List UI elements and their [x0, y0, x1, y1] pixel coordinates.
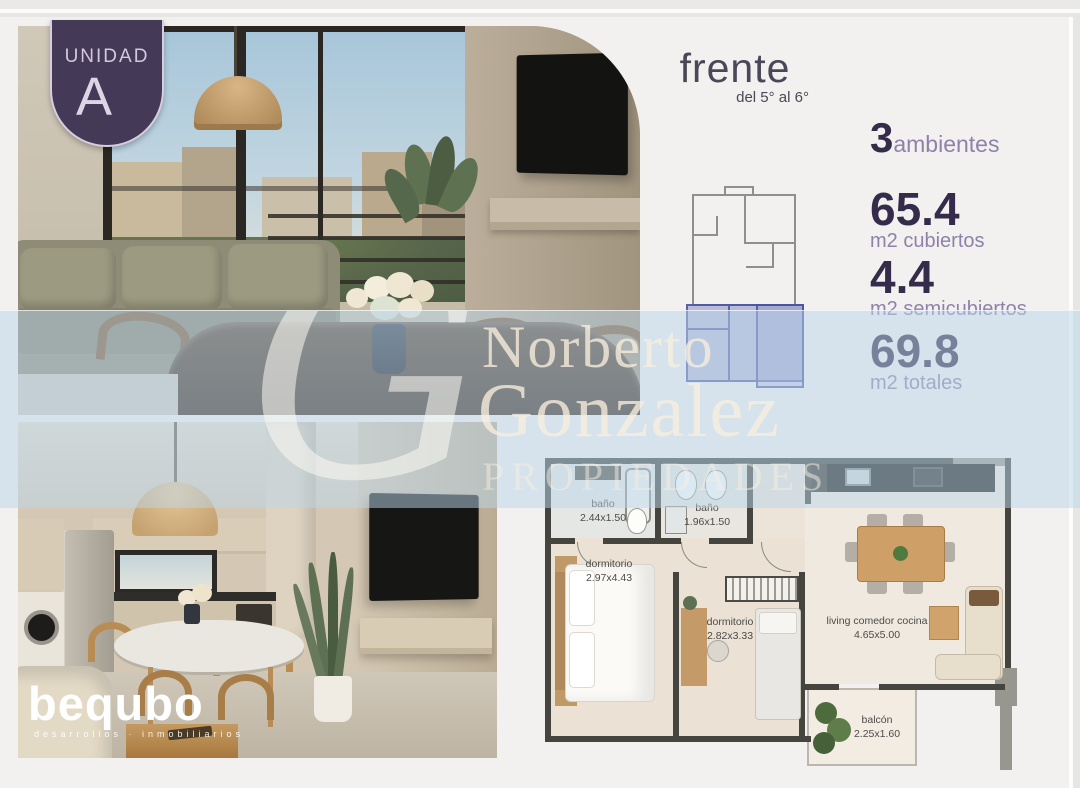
- bed-headboard: [555, 572, 565, 690]
- room-label-bedroom1: dormitorio 2.97x4.43: [559, 558, 659, 585]
- wall: [799, 684, 839, 690]
- plant-pot: [314, 676, 352, 722]
- wall: [655, 458, 661, 538]
- wall: [545, 538, 575, 544]
- pendant-cord: [174, 422, 177, 484]
- kitchen-photo: bequbo desarrollos · inmobiliarios: [18, 422, 497, 758]
- dining-table: [114, 620, 304, 672]
- small-vase: [184, 604, 200, 624]
- tv-screen: [369, 493, 478, 601]
- room-name: dormitorio: [687, 616, 773, 630]
- room-dims: 2.44x1.50: [561, 512, 645, 526]
- laundry-cabinet: [18, 518, 64, 590]
- room-label-bath2: baño 1.96x1.50: [667, 502, 747, 529]
- room-dims: 2.82x3.33: [687, 630, 773, 644]
- room-dims: 4.65x5.00: [817, 629, 937, 643]
- wall: [673, 572, 679, 736]
- kitchen-sink: [845, 468, 871, 486]
- room-label-bedroom2: dormitorio 2.82x3.33: [687, 616, 773, 643]
- tv-console: [490, 198, 640, 230]
- keyplan-wall: [746, 266, 774, 268]
- bath-vanity: [575, 466, 621, 480]
- stat-ambientes-value: 3: [870, 118, 893, 158]
- stat-ambientes: 3ambientes: [870, 118, 999, 158]
- kitchen-cabinet: [811, 464, 827, 492]
- floor-plan: baño 2.44x1.50 baño 1.96x1.50 dormitorio…: [545, 458, 1037, 770]
- desk-chair: [707, 640, 729, 662]
- hall-floor: [753, 464, 805, 538]
- dining-chair-bottom: [867, 580, 887, 594]
- keyplan-wall: [716, 216, 718, 236]
- orientation-floors: del 5° al 6°: [655, 89, 815, 106]
- bidet: [705, 470, 727, 500]
- room-label-bath1: baño 2.44x1.50: [561, 498, 645, 525]
- stat-cubiertos-label: m2 cubiertos: [870, 230, 985, 253]
- keyplan-unit-wall: [728, 306, 730, 380]
- keyplan-wall: [772, 244, 774, 268]
- floating-shelf: [360, 618, 492, 654]
- room-label-balcony: balcón 2.25x1.60: [837, 714, 917, 741]
- brand-tagline: desarrollos · inmobiliarios: [34, 729, 244, 739]
- wardrobe: [725, 576, 799, 602]
- stat-ambientes-label: ambientes: [893, 131, 999, 157]
- sofa-chaise: [935, 654, 1001, 680]
- stat-semicubiertos: 4.4m2 semicubiertos: [870, 256, 1027, 321]
- photo1-floor: [18, 374, 178, 415]
- room-dims: 2.25x1.60: [837, 728, 917, 742]
- tv-screen: [517, 53, 628, 176]
- wall: [879, 684, 1005, 690]
- wall: [545, 736, 811, 742]
- page-top-strip: [0, 0, 1080, 13]
- brand-name: bequbo: [28, 680, 244, 727]
- sofa-cushion: [20, 248, 116, 310]
- room-name: dormitorio: [559, 558, 659, 572]
- desk-plant: [683, 596, 697, 610]
- sofa-pillow: [969, 590, 999, 606]
- stove: [913, 467, 943, 487]
- stat-cubiertos: 65.4m2 cubiertos: [870, 188, 985, 253]
- stat-totales: 69.8m2 totales: [870, 330, 962, 395]
- toilet: [675, 470, 697, 500]
- stat-semicubiertos-label: m2 semicubiertos: [870, 298, 1027, 321]
- flowers: [370, 296, 400, 320]
- pillow: [569, 632, 595, 688]
- unit-badge-letter: A: [52, 70, 136, 124]
- flowers: [192, 584, 212, 602]
- wall: [545, 458, 551, 742]
- stat-cubiertos-value: 65.4: [870, 188, 985, 232]
- room-name: balcón: [837, 714, 917, 728]
- room-label-living: living comedor cocina 4.65x5.00: [817, 615, 937, 642]
- keyplan-wall: [744, 242, 794, 244]
- wall: [747, 458, 753, 538]
- stat-totales-value: 69.8: [870, 330, 962, 374]
- wall: [1005, 458, 1011, 684]
- keyplan-unit-living: [756, 304, 804, 388]
- stat-semicubiertos-value: 4.4: [870, 256, 1027, 300]
- room-name: baño: [561, 498, 645, 512]
- sofa-cushion: [228, 244, 328, 310]
- wall: [603, 538, 681, 544]
- stat-totales-label: m2 totales: [870, 372, 962, 395]
- keyplan-wall: [692, 234, 716, 236]
- wall-pillar: [1000, 706, 1012, 770]
- dining-chair-bottom: [903, 580, 923, 594]
- sofa-cushion: [122, 246, 222, 310]
- pendant-cord: [234, 26, 237, 78]
- room-dims: 2.97x4.43: [559, 572, 659, 586]
- room-name: baño: [667, 502, 747, 516]
- orientation-block: frente del 5° al 6°: [655, 48, 815, 106]
- flowers: [398, 298, 422, 318]
- flower-vase: [372, 324, 406, 374]
- wall: [709, 538, 753, 544]
- brand-logo: bequbo desarrollos · inmobiliarios: [28, 680, 244, 739]
- room-name: living comedor cocina: [817, 615, 937, 629]
- table-plant: [893, 546, 908, 561]
- keyplan-unit-wall: [688, 328, 728, 330]
- room-dims: 1.96x1.50: [667, 516, 747, 530]
- key-plan: [680, 186, 812, 390]
- washer-door: [24, 610, 59, 645]
- unit-badge-label: UNIDAD: [52, 46, 162, 68]
- keyplan-notch: [724, 186, 754, 196]
- orientation-title: frente: [655, 48, 815, 89]
- unit-badge: UNIDAD A: [50, 20, 164, 147]
- balcony-plant: [813, 732, 835, 754]
- keyplan-wall: [744, 196, 746, 244]
- page-right-edge: [1069, 17, 1073, 788]
